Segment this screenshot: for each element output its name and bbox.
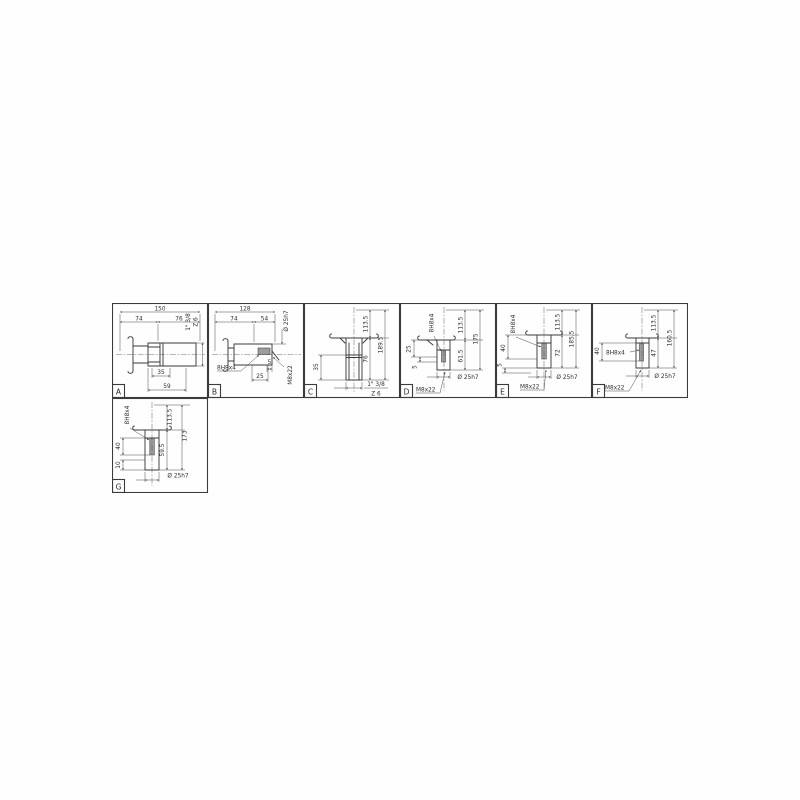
bore-spec: Ø 25h7	[283, 310, 290, 331]
dim-overall-length: 160.5	[668, 329, 674, 346]
spline-spec: 1" 3/8	[367, 382, 385, 388]
panel-a: 150 74 76 1" 3/8 Z 6 35 59 A	[113, 304, 208, 398]
dim-key-length: 25	[256, 374, 264, 380]
shaft-side-view	[128, 337, 196, 374]
panel-f: 40 8H8x4 113.5 47 160.5 Ø 25h7 M8x22 F	[593, 304, 688, 398]
dim-shaft-length: 61.5	[459, 349, 465, 362]
tooth-count: Z 6	[371, 392, 381, 398]
key-spec: 8H8x4	[125, 405, 131, 424]
dim-flange-drop: 113.5	[168, 408, 174, 425]
panel-e: 8H8x4 40 5 113.5 72 185.5 Ø 25h7 M8x22 E	[497, 304, 592, 398]
scanned-drawing-page: 150 74 76 1" 3/8 Z 6 35 59 A	[0, 0, 800, 800]
dim-key-length: 40	[501, 344, 507, 352]
dim-right-length: 54	[261, 317, 269, 323]
dim-end-length: 59	[163, 384, 171, 390]
dim-key-position: 25	[407, 345, 413, 353]
key-spec: 8H8x4	[606, 351, 625, 357]
panel-label: E	[500, 388, 505, 397]
dim-key-offset: 5	[268, 360, 272, 366]
panel-label: B	[212, 388, 217, 397]
dim-shaft-length: 47	[652, 349, 658, 357]
tooth-count: Z 6	[194, 317, 200, 327]
dim-key-length: 40	[595, 347, 601, 355]
panel-label: F	[596, 388, 600, 397]
dim-left-length: 74	[135, 317, 143, 323]
panel-border	[401, 304, 496, 398]
dim-right-length: 76	[175, 317, 183, 323]
dim-shaft-length: 76	[364, 355, 370, 363]
dim-overall-length: 189.5	[379, 336, 385, 353]
dim-flange-drop: 113.5	[459, 316, 465, 333]
dim-shaft-length: 59.5	[160, 443, 166, 456]
thread-spec: M8x22	[520, 385, 540, 391]
dim-key-offset: 5	[413, 365, 419, 369]
dim-spline-length: 35	[314, 363, 320, 371]
spline-spec: 1" 3/8	[186, 313, 192, 331]
panel-g: 8H8x4 40 10 113.5 59.5 173 Ø 25h7 G	[113, 399, 208, 493]
bore-spec: Ø 25h7	[556, 374, 577, 381]
panel-label: G	[116, 483, 122, 492]
dim-overall-length: 175	[474, 333, 480, 344]
thread-spec: M8x22	[288, 365, 294, 385]
panel-label: A	[116, 388, 122, 397]
panel-c: 113.5 76 189.5 35 1" 3/8 Z 6 C	[305, 304, 400, 398]
thread-spec: M8x22	[605, 386, 625, 392]
key-spec: 8H8x4	[217, 366, 236, 372]
bore-spec: Ø 25h7	[167, 473, 188, 480]
dim-overall-length: 185.5	[570, 330, 576, 347]
dim-overall-length: 150	[154, 307, 165, 313]
dim-left-length: 74	[230, 317, 238, 323]
dim-overall-length: 173	[183, 430, 189, 441]
panel-d: 8H8x4 25 5 113.5 61.5 175 Ø 25h7 M8x22 D	[401, 304, 496, 398]
key-spec: 8H8x4	[430, 313, 436, 332]
thread-spec: M8x22	[416, 388, 436, 394]
dim-hub-length: 35	[157, 370, 165, 376]
bore-spec: Ø 25h7	[654, 373, 675, 380]
panel-label: D	[404, 388, 410, 397]
panel-label: C	[308, 388, 313, 397]
technical-drawing: 150 74 76 1" 3/8 Z 6 35 59 A	[112, 303, 688, 493]
option-drawings-sheet: 150 74 76 1" 3/8 Z 6 35 59 A	[112, 303, 688, 493]
dim-flange-drop: 113.5	[364, 315, 370, 332]
bore-spec: Ø 25h7	[457, 374, 478, 381]
dim-flange-drop: 113.5	[652, 314, 658, 331]
panel-b: 128 74 54 Ø 25h7 8H8x4 5 25 M8x22 B	[209, 304, 304, 398]
key-spec: 8H8x4	[511, 314, 517, 333]
dim-key-length: 40	[116, 442, 122, 450]
dim-end-offset: 5	[498, 363, 504, 367]
dim-end-offset: 10	[116, 461, 122, 469]
dim-overall-length: 128	[239, 307, 250, 313]
dim-flange-drop: 113.5	[556, 313, 562, 330]
dim-shaft-length: 72	[556, 349, 562, 357]
